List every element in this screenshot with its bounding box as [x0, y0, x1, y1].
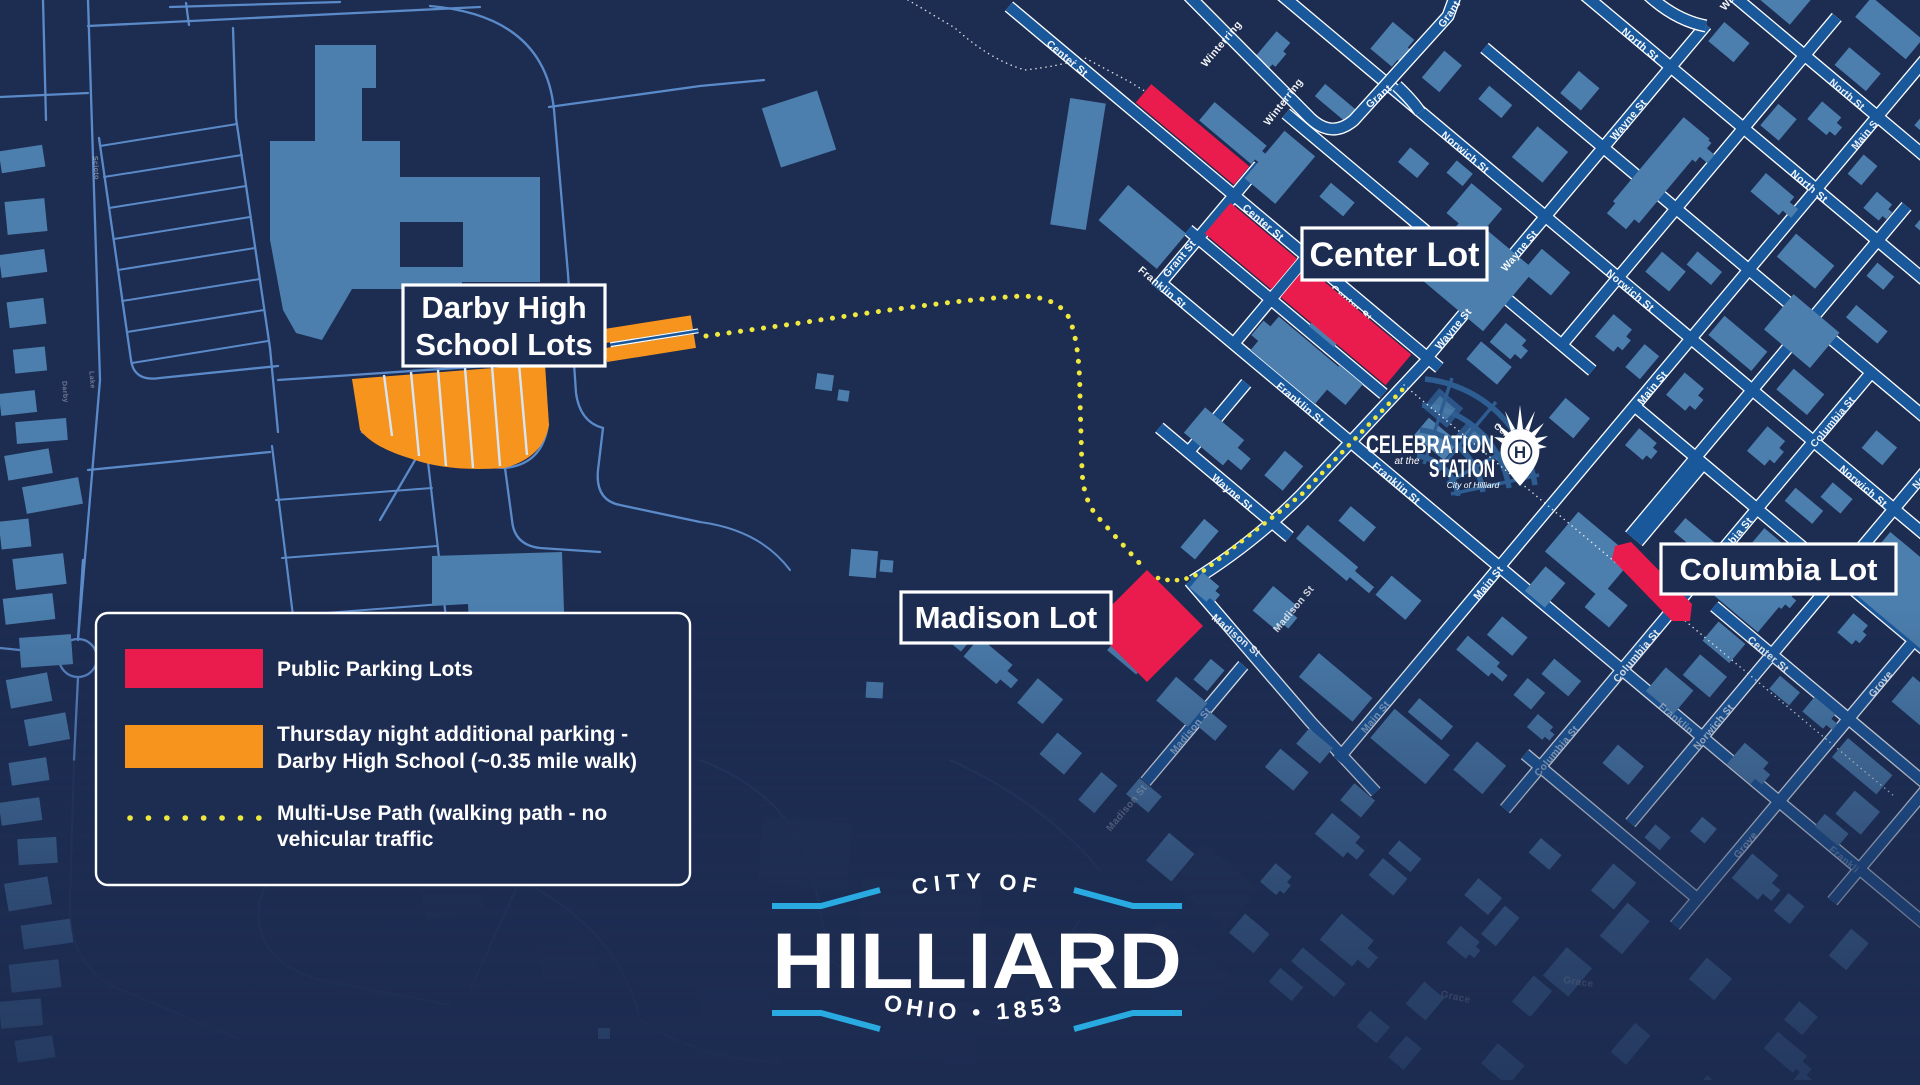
svg-text:H: H — [1514, 443, 1526, 462]
svg-text:vehicular traffic: vehicular traffic — [277, 828, 434, 851]
svg-text:Public Parking Lots: Public Parking Lots — [277, 658, 473, 681]
svg-text:Madison Lot: Madison Lot — [915, 600, 1098, 635]
svg-text:Columbia Lot: Columbia Lot — [1679, 552, 1877, 587]
svg-text:HILLIARD: HILLIARD — [772, 916, 1182, 1005]
svg-text:City of Hilliard: City of Hilliard — [1447, 480, 1500, 490]
svg-text:Multi-Use Path (walking path -: Multi-Use Path (walking path - no — [277, 802, 607, 825]
svg-text:at the: at the — [1394, 456, 1419, 467]
svg-text:Darby High School (~0.35 mile: Darby High School (~0.35 mile walk) — [277, 750, 637, 773]
svg-text:Center Lot: Center Lot — [1310, 236, 1480, 274]
svg-text:Thursday night additional park: Thursday night additional parking - — [277, 723, 628, 746]
svg-text:School Lots: School Lots — [415, 327, 592, 362]
svg-text:Darby High: Darby High — [421, 290, 586, 325]
svg-text:STATION: STATION — [1429, 455, 1495, 483]
